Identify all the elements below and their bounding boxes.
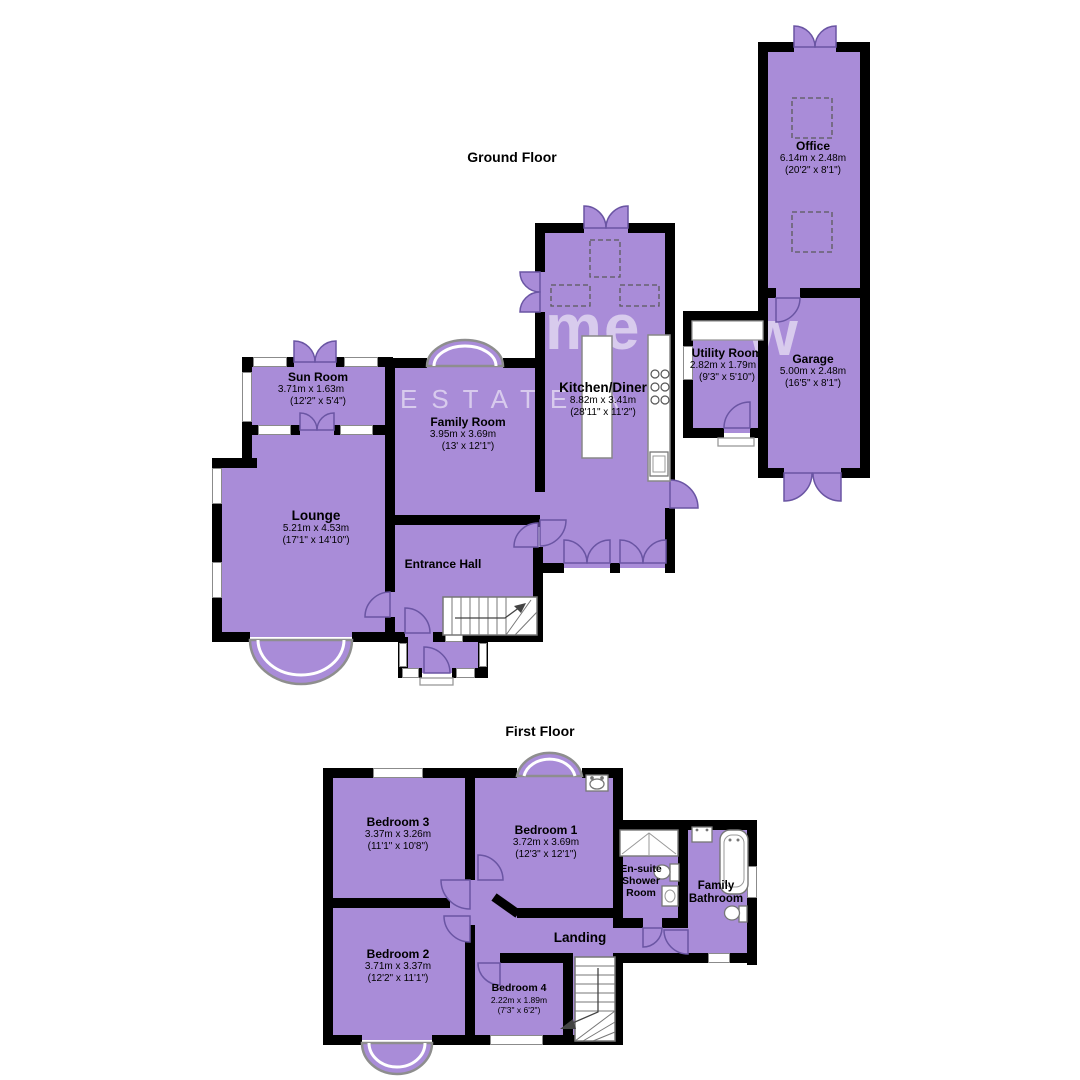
- room-dim-imperial: (9'3" x 5'10"): [691, 372, 763, 384]
- wall-segment: [683, 311, 768, 321]
- room-dim-imperial: (20'2" x 8'1"): [758, 165, 868, 177]
- window: [399, 643, 407, 667]
- wall-segment: [860, 42, 870, 478]
- wall-segment: [613, 953, 623, 1045]
- room-dim-imperial: (12'2" x 11'1"): [328, 973, 468, 985]
- wall-segment: [613, 918, 643, 928]
- wall-segment: [618, 953, 757, 963]
- porch-step: [420, 678, 453, 685]
- room-name: Lounge: [246, 508, 386, 523]
- room-label-bedroom4: Bedroom 4 2.22m x 1.89m (7'3" x 6'2"): [469, 983, 569, 1015]
- room-label-lounge: Lounge 5.21m x 4.53m (17'1" x 14'10"): [246, 508, 386, 547]
- window: [490, 1035, 543, 1045]
- room-name: Utility Room: [691, 347, 763, 360]
- room-area-office-garage: [768, 47, 865, 473]
- room-dim-metric: 8.82m x 3.41m: [523, 395, 683, 407]
- room-name: Bedroom 1: [476, 824, 616, 837]
- window: [253, 357, 287, 367]
- window: [344, 357, 378, 367]
- room-dim-imperial: (28'11" x 11'2"): [523, 407, 683, 419]
- wall-segment: [533, 547, 543, 642]
- wall-segment: [678, 830, 688, 922]
- room-dim-metric: 5.00m x 2.48m: [758, 366, 868, 378]
- wall-segment: [517, 908, 622, 918]
- room-dim-imperial: (12'2" x 5'4"): [288, 396, 348, 408]
- plan-shape: [520, 272, 540, 292]
- wall-segment: [535, 223, 545, 272]
- plan-shape: [294, 341, 315, 362]
- room-label-sunroom: Sun Room 3.71m x 1.63m (12'2" x 5'4"): [288, 371, 348, 408]
- wall-segment: [212, 632, 250, 642]
- window: [479, 643, 487, 667]
- room-name: Entrance Hall: [403, 558, 483, 571]
- wall-segment: [768, 288, 776, 298]
- room-label-bathroom: Family Bathroom: [676, 880, 756, 906]
- window: [456, 668, 475, 678]
- plan-shape: [813, 473, 841, 501]
- plan-shape: [250, 640, 352, 684]
- room-label-family: Family Room 3.95m x 3.69m (13' x 12'1"): [428, 416, 508, 453]
- window: [340, 425, 373, 435]
- wall-segment: [758, 42, 794, 52]
- window: [212, 562, 222, 598]
- room-dim-metric: 3.71m x 3.37m: [328, 961, 468, 973]
- room-dim-imperial: (11'1" x 10'8"): [328, 841, 468, 853]
- room-area-lounge-left: [217, 463, 257, 637]
- plan-shape: [584, 206, 606, 228]
- wall-segment: [683, 428, 724, 438]
- room-label-utility: Utility Room 2.82m x 1.79m (9'3" x 5'10"…: [691, 347, 763, 384]
- room-name: Family Room: [428, 416, 508, 429]
- room-dim-metric: 3.72m x 3.69m: [476, 837, 616, 849]
- window: [373, 768, 423, 778]
- wall-segment: [500, 953, 565, 963]
- room-label-bedroom3: Bedroom 3 3.37m x 3.26m (11'1" x 10'8"): [328, 816, 468, 853]
- plan-shape: [784, 473, 812, 501]
- wall-segment: [385, 435, 395, 592]
- room-dim-imperial: (13' x 12'1"): [428, 441, 508, 453]
- plan-shape: [315, 341, 336, 362]
- wall-segment: [328, 898, 450, 908]
- room-dim-metric: 3.95m x 3.69m: [418, 429, 508, 441]
- room-name: Kitchen/Diner: [523, 380, 683, 395]
- wall-segment: [665, 223, 675, 480]
- room-label-hall: Entrance Hall: [403, 558, 483, 571]
- room-name: Family Bathroom: [676, 880, 756, 906]
- room-dim-imperial: (16'5" x 8'1"): [758, 378, 868, 390]
- room-dim-metric: 2.82m x 1.79m: [683, 360, 763, 372]
- wall-segment: [503, 358, 545, 368]
- room-name: Bedroom 3: [328, 816, 468, 829]
- window: [242, 372, 252, 422]
- wall-segment: [610, 563, 620, 573]
- room-dim-imperial: (7'3" x 6'2"): [469, 1005, 569, 1015]
- wall-segment: [836, 42, 870, 52]
- room-name: Bedroom 4: [469, 983, 569, 995]
- room-name: Office: [758, 140, 868, 153]
- first-floor-title: First Floor: [460, 723, 620, 739]
- window: [402, 668, 419, 678]
- room-dim-metric: 5.21m x 4.53m: [246, 523, 386, 535]
- room-name: En-suite Shower Room: [606, 864, 676, 899]
- window: [212, 468, 222, 504]
- wall-segment: [530, 515, 540, 527]
- plan-shape: [815, 26, 836, 47]
- room-label-office: Office 6.14m x 2.48m (20'2" x 8'1"): [758, 140, 868, 177]
- window: [708, 953, 730, 963]
- room-label-kitchen: Kitchen/Diner 8.82m x 3.41m (28'11" x 11…: [523, 380, 683, 419]
- wall-segment: [758, 42, 768, 478]
- room-dim-imperial: (12'3" x 12'1"): [476, 849, 616, 861]
- wall-segment: [758, 468, 784, 478]
- room-name: Landing: [530, 930, 630, 945]
- wall-segment: [613, 820, 757, 830]
- room-name: Sun Room: [288, 371, 348, 384]
- wall-segment: [385, 358, 395, 435]
- plan-shape: [520, 292, 540, 312]
- room-label-bedroom2: Bedroom 2 3.71m x 3.37m (12'2" x 11'1"): [328, 948, 468, 985]
- room-label-ensuite: En-suite Shower Room: [606, 864, 676, 899]
- plan-shape: [794, 26, 815, 47]
- room-label-bedroom1: Bedroom 1 3.72m x 3.69m (12'3" x 12'1"): [476, 824, 616, 861]
- window: [258, 425, 291, 435]
- wall-segment: [750, 428, 768, 438]
- wall-segment: [800, 288, 870, 298]
- room-label-landing: Landing: [530, 930, 630, 945]
- room-dim-metric: 6.14m x 2.48m: [758, 153, 868, 165]
- plan-shape: [606, 206, 628, 228]
- room-dim-metric: 3.71m x 1.63m: [274, 384, 348, 396]
- room-dim-imperial: (17'1" x 14'10"): [246, 535, 386, 547]
- room-area-hall: [393, 520, 538, 637]
- room-name: Bedroom 2: [328, 948, 468, 961]
- plan-shape: [362, 1043, 432, 1074]
- floorplan: me w ESTATE A: [0, 0, 1080, 1080]
- wall-segment: [393, 515, 535, 525]
- wall-segment: [390, 358, 427, 368]
- watermark-fragment-1: me: [545, 290, 642, 364]
- room-name: Garage: [758, 353, 868, 366]
- room-label-garage: Garage 5.00m x 2.48m (16'5" x 8'1"): [758, 353, 868, 390]
- ground-floor-title: Ground Floor: [432, 149, 592, 165]
- plan-shape: [258, 640, 344, 675]
- window: [445, 632, 463, 642]
- wall-segment: [666, 563, 675, 573]
- wall-segment: [323, 1035, 362, 1045]
- utility-step: [718, 438, 754, 446]
- room-dim-metric: 2.22m x 1.89m: [469, 995, 569, 1005]
- plan-shape: [369, 1043, 425, 1067]
- wall-segment: [841, 468, 870, 478]
- room-dim-metric: 3.37m x 3.26m: [328, 829, 468, 841]
